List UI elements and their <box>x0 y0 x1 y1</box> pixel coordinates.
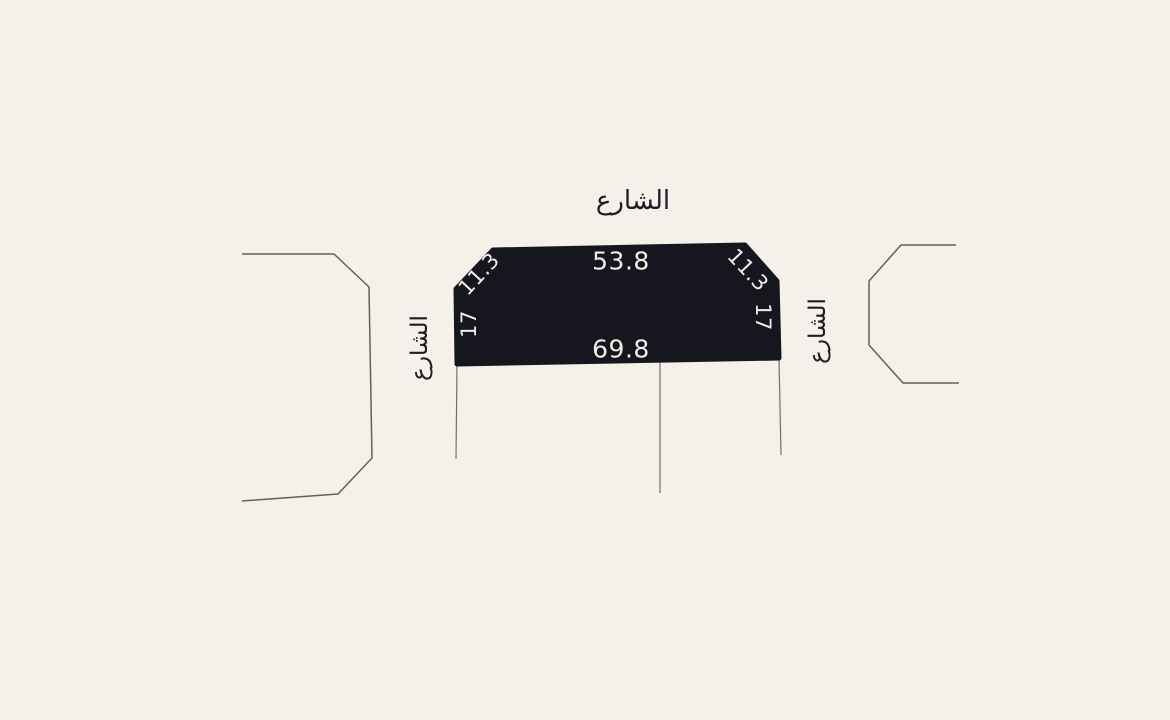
dimension-bottom-edge: 69.8 <box>592 335 650 364</box>
dimension-right-edge: 17 <box>751 303 775 331</box>
street-label-top: الشارع <box>596 186 670 216</box>
dimension-left-edge: 17 <box>457 310 481 338</box>
dimension-top-edge: 53.8 <box>592 247 650 276</box>
parcel-diagram: الشارع الشارع الشارع 53.8 69.8 11.3 11.3… <box>0 0 1170 720</box>
street-label-left: الشارع <box>407 315 433 381</box>
street-label-right: الشارع <box>805 298 831 364</box>
